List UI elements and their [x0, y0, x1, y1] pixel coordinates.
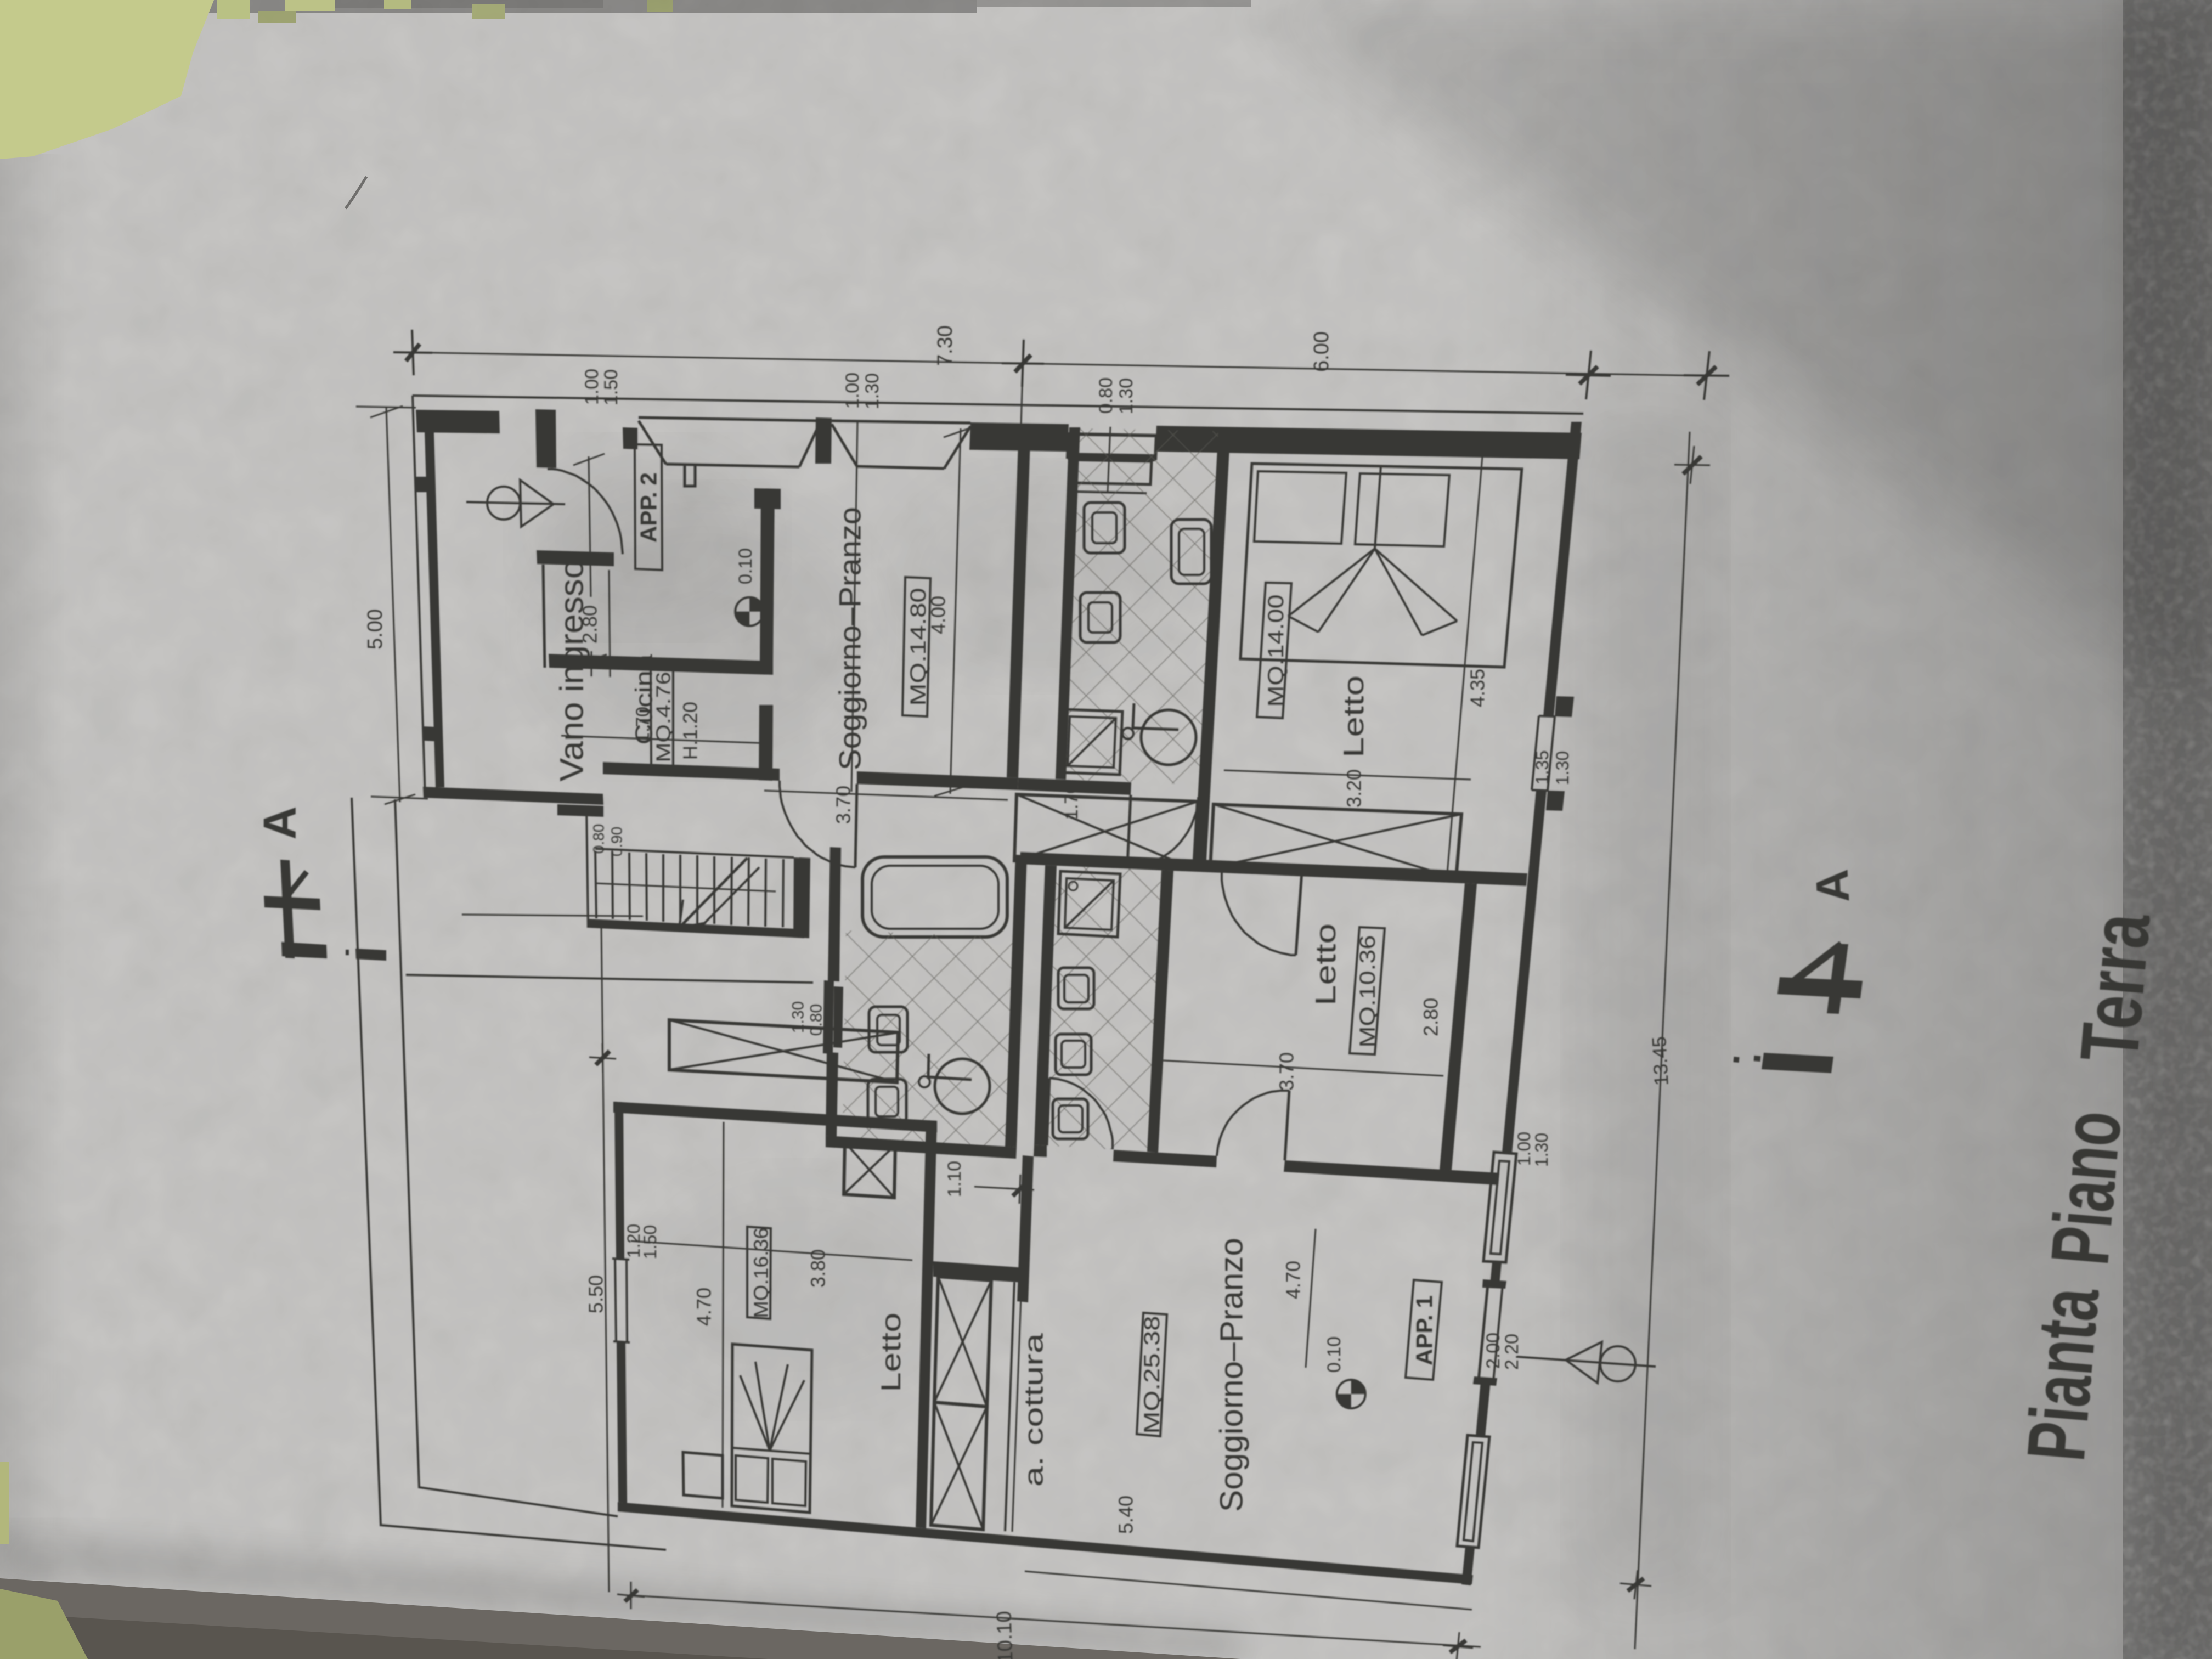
svg-text:H.1.20: H.1.20	[679, 702, 702, 760]
svg-text:a. cottura: a. cottura	[1020, 1333, 1049, 1487]
svg-text:1.50: 1.50	[640, 1225, 660, 1259]
svg-text:Vano ingresso: Vano ingresso	[554, 560, 590, 782]
svg-text:1.10: 1.10	[944, 1161, 965, 1197]
svg-text:3.70: 3.70	[1276, 1052, 1298, 1091]
svg-text:10.10: 10.10	[992, 1611, 1017, 1659]
svg-text:MQ.16.36: MQ.16.36	[750, 1228, 772, 1318]
svg-text:0.80: 0.80	[590, 824, 607, 854]
svg-text:13.45: 13.45	[1647, 1036, 1673, 1086]
svg-text:1.30: 1.30	[1116, 378, 1137, 414]
svg-text:7.30: 7.30	[934, 325, 957, 366]
svg-text:4.35: 4.35	[1466, 669, 1489, 707]
svg-text:MQ.10.36: MQ.10.36	[1356, 935, 1380, 1048]
svg-text:0.90: 0.90	[608, 827, 625, 857]
svg-text:Soggiorno–Pranzo: Soggiorno–Pranzo	[833, 507, 867, 770]
svg-text:5.00: 5.00	[364, 609, 387, 650]
svg-text:4.70: 4.70	[693, 1288, 715, 1326]
svg-text:1.50: 1.50	[601, 369, 622, 405]
svg-text:Terra: Terra	[2063, 909, 2168, 1065]
svg-text:2.80: 2.80	[1420, 998, 1442, 1036]
svg-text:0.10: 0.10	[735, 548, 756, 584]
svg-text:5.40: 5.40	[1115, 1496, 1137, 1534]
svg-text:1.00: 1.00	[582, 369, 602, 405]
svg-text:APP. 1: APP. 1	[1412, 1295, 1437, 1365]
svg-text:A: A	[254, 806, 306, 840]
svg-text:MQ.4.76: MQ.4.76	[652, 672, 675, 763]
svg-text:1.30: 1.30	[862, 373, 883, 409]
svg-text:1.00: 1.00	[1514, 1132, 1534, 1166]
svg-text:3.80: 3.80	[807, 1249, 830, 1288]
svg-text:MQ.14.00: MQ.14.00	[1264, 595, 1288, 707]
svg-text:0.10: 0.10	[1324, 1336, 1345, 1373]
svg-text:Letto: Letto	[1338, 675, 1370, 758]
svg-text:1.70: 1.70	[633, 707, 653, 743]
svg-text:Pianta: Pianta	[2010, 1284, 2117, 1465]
svg-text:1.35: 1.35	[1532, 751, 1552, 785]
svg-text:4.00: 4.00	[927, 596, 950, 634]
svg-text:APP. 2: APP. 2	[636, 472, 662, 543]
svg-text:MQ.25.38: MQ.25.38	[1140, 1316, 1164, 1434]
svg-text:0.80: 0.80	[1096, 377, 1116, 414]
svg-text:2.00: 2.00	[1483, 1333, 1504, 1369]
svg-text:6.00: 6.00	[1310, 331, 1333, 372]
svg-text:1.00: 1.00	[842, 373, 863, 409]
svg-text:Piano: Piano	[2033, 1107, 2138, 1268]
svg-text:0.80: 0.80	[808, 1004, 826, 1036]
svg-text:5.50: 5.50	[585, 1275, 607, 1313]
svg-text:Letto: Letto	[876, 1313, 906, 1392]
svg-text:2.80: 2.80	[579, 605, 601, 644]
svg-text:Soggiorno–Pranzo: Soggiorno–Pranzo	[1214, 1238, 1250, 1512]
svg-text:A: A	[1805, 868, 1859, 904]
svg-text:1.30: 1.30	[1553, 751, 1572, 785]
svg-text:2.20: 2.20	[1502, 1334, 1522, 1370]
svg-text:3.20: 3.20	[1343, 769, 1365, 808]
svg-text:Letto: Letto	[1310, 923, 1342, 1006]
svg-text:4.70: 4.70	[1282, 1261, 1305, 1299]
svg-text:1.30: 1.30	[1532, 1133, 1551, 1167]
